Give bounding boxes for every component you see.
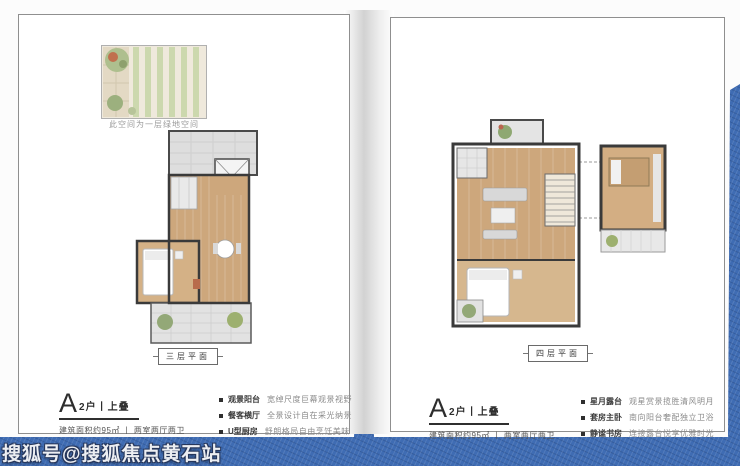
feature-item: 星月露台 观星赏景揽胜清风明月 — [581, 396, 714, 407]
tick-line — [218, 356, 223, 357]
floor-plan-level4 — [449, 118, 669, 334]
floorplan-page-level4: 四层平面 A 2户丨上叠 建筑面积约95㎡ 丨 两室两厅两卫 星月露台 观星赏景… — [390, 17, 725, 432]
unit-type-suffix: 2户丨上叠 — [449, 403, 500, 420]
plan-label: 三层平面 — [153, 348, 223, 365]
title-underline — [429, 423, 509, 425]
tick-line — [588, 353, 593, 354]
feature-list: 星月露台 观星赏景揽胜清风明月 套房主卧 南向阳台奢配独立卫浴 静谧书房 连接露… — [581, 396, 714, 444]
feature-list: 观景阳台 宽绰尺度巨幕观景视野 餐客横厅 全景设计自在采光纳景 U型厨房 舒朗格… — [219, 394, 352, 442]
feature-item: 静谧书房 连接露台悦享优雅时光 — [581, 428, 714, 439]
plan-label-box: 三层平面 — [158, 348, 218, 365]
floorplan-page-level3: 此空间为一层绿地空间 — [18, 14, 350, 434]
plan-label: 四层平面 — [523, 345, 593, 362]
unit-title-block: A 2户丨上叠 建筑面积约95㎡ 丨 两室两厅两卫 — [59, 391, 185, 436]
roof-garden-plan — [101, 45, 207, 119]
plant-icon — [606, 235, 618, 247]
unit-area-line: 建筑面积约95㎡ 丨 两室两厅两卫 — [59, 425, 185, 436]
bullet-square-icon — [581, 416, 585, 420]
bullet-square-icon — [219, 414, 223, 418]
watermark-text: 搜狐号@搜狐焦点黄石站 — [2, 439, 222, 466]
title-underline — [59, 418, 139, 420]
page-background: 此空间为一层绿地空间 — [0, 0, 740, 466]
stairs — [545, 174, 575, 226]
unit-type-letter: A — [59, 391, 77, 415]
unit-area-line: 建筑面积约95㎡ 丨 两室两厅两卫 — [429, 430, 555, 441]
unit-title-block: A 2户丨上叠 建筑面积约95㎡ 丨 两室两厅两卫 — [429, 396, 555, 441]
bullet-square-icon — [581, 400, 585, 404]
sofa — [483, 188, 527, 201]
plant-icon — [462, 304, 476, 318]
shrub-icon — [107, 95, 123, 111]
dining-table — [216, 240, 234, 258]
plan-label-box: 四层平面 — [528, 345, 588, 362]
accent-furniture — [193, 279, 200, 289]
plant-icon — [227, 312, 243, 328]
kitchen-counter — [171, 177, 197, 209]
feature-item: U型厨房 舒朗格局自由烹饪美味 — [219, 426, 352, 437]
bullet-square-icon — [219, 430, 223, 434]
feature-item: 餐客横厅 全景设计自在采光纳景 — [219, 410, 352, 421]
unit-type-letter: A — [429, 396, 447, 420]
unit-type-suffix: 2户丨上叠 — [79, 398, 130, 415]
coffee-table — [491, 208, 515, 223]
page-fold-shadow — [344, 10, 394, 434]
feature-item: 套房主卧 南向阳台奢配独立卫浴 — [581, 412, 714, 423]
feature-item: 观景阳台 宽绰尺度巨幕观景视野 — [219, 394, 352, 405]
bullet-square-icon — [581, 432, 585, 436]
plant-icon — [157, 314, 173, 330]
bullet-square-icon — [219, 398, 223, 402]
floor-plan-level3 — [135, 129, 259, 345]
